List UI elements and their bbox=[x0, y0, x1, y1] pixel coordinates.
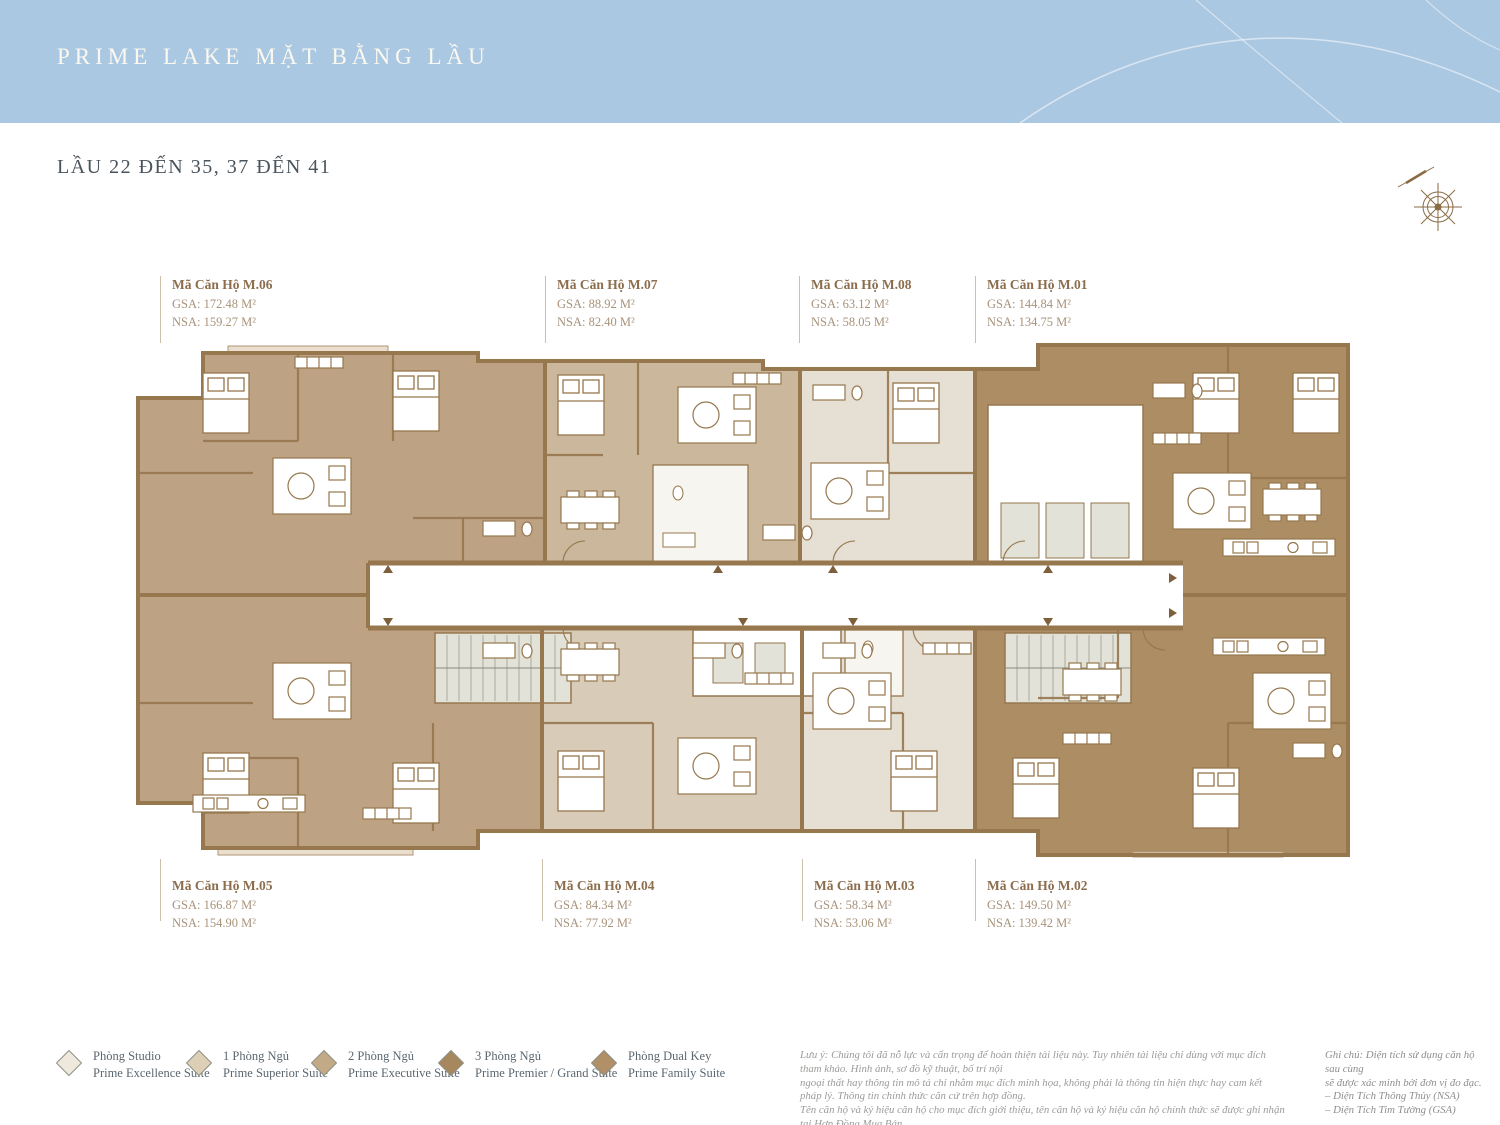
lift-bank bbox=[988, 405, 1143, 563]
legend-item-1br: 1 Phòng Ngủ Prime Superior Suite bbox=[185, 1048, 328, 1082]
legend-diamond-icon bbox=[310, 1049, 338, 1077]
legend-diamond-icon bbox=[590, 1049, 618, 1077]
unit-nsa: NSA: 58.05 M² bbox=[811, 314, 961, 330]
legend-diamond-icon bbox=[55, 1049, 83, 1077]
note-line: – Diện Tích Thông Thủy (NSA) bbox=[1325, 1090, 1490, 1104]
unit-label-m01: Mã Căn Hộ M.01 GSA: 144.84 M² NSA: 134.7… bbox=[987, 277, 1137, 330]
unit-label-m06: Mã Căn Hộ M.06 GSA: 172.48 M² NSA: 159.2… bbox=[172, 277, 322, 330]
guide-line bbox=[975, 276, 976, 343]
guide-line bbox=[975, 859, 976, 921]
unit-gsa: GSA: 84.34 M² bbox=[554, 897, 704, 913]
unit-name: Mã Căn Hộ M.03 bbox=[814, 878, 964, 894]
unit-gsa: GSA: 144.84 M² bbox=[987, 296, 1137, 312]
brochure-page: PRIME LAKE MẶT BẰNG LẦU LẦU 22 ĐẾN 35, 3… bbox=[0, 0, 1500, 1125]
legend-label-en: Prime Family Suite bbox=[628, 1065, 725, 1082]
unit-gsa: GSA: 149.50 M² bbox=[987, 897, 1137, 913]
note-line: Ghi chú: Diện tích sử dụng căn hộ sau cù… bbox=[1325, 1049, 1490, 1077]
floor-range-title: LẦU 22 ĐẾN 35, 37 ĐẾN 41 bbox=[57, 156, 331, 179]
unit-nsa: NSA: 82.40 M² bbox=[557, 314, 707, 330]
legend-item-dualkey: Phòng Dual Key Prime Family Suite bbox=[590, 1048, 725, 1082]
unit-label-m05: Mã Căn Hộ M.05 GSA: 166.87 M² NSA: 154.9… bbox=[172, 878, 322, 931]
unit-gsa: GSA: 172.48 M² bbox=[172, 296, 322, 312]
unit-nsa: NSA: 134.75 M² bbox=[987, 314, 1137, 330]
unit-nsa: NSA: 77.92 M² bbox=[554, 915, 704, 931]
guide-line bbox=[545, 276, 546, 343]
unit-nsa: NSA: 139.42 M² bbox=[987, 915, 1137, 931]
unit-gsa: GSA: 166.87 M² bbox=[172, 897, 322, 913]
unit-name: Mã Căn Hộ M.04 bbox=[554, 878, 704, 894]
guide-line bbox=[799, 276, 800, 343]
unit-name: Mã Căn Hộ M.01 bbox=[987, 277, 1137, 293]
unit-gsa: GSA: 58.34 M² bbox=[814, 897, 964, 913]
note-line: – Diện Tích Tim Tường (GSA) bbox=[1325, 1104, 1490, 1118]
unit-name: Mã Căn Hộ M.02 bbox=[987, 878, 1137, 894]
unit-name: Mã Căn Hộ M.06 bbox=[172, 277, 322, 293]
unit-label-m02: Mã Căn Hộ M.02 GSA: 149.50 M² NSA: 139.4… bbox=[987, 878, 1137, 931]
unit-nsa: NSA: 154.90 M² bbox=[172, 915, 322, 931]
guide-line bbox=[160, 859, 161, 921]
unit-gsa: GSA: 88.92 M² bbox=[557, 296, 707, 312]
guide-line bbox=[160, 276, 161, 343]
corridor bbox=[368, 563, 1183, 628]
unit-name: Mã Căn Hộ M.08 bbox=[811, 277, 961, 293]
header-band: PRIME LAKE MẶT BẰNG LẦU bbox=[0, 0, 1500, 123]
note-line: sẽ được xác minh bởi đơn vị đo đạc. bbox=[1325, 1077, 1490, 1091]
compass-icon bbox=[1392, 158, 1476, 236]
legend-label-vi: Phòng Dual Key bbox=[628, 1048, 725, 1065]
guide-line bbox=[802, 859, 803, 921]
unit-label-m07: Mã Căn Hộ M.07 GSA: 88.92 M² NSA: 82.40 … bbox=[557, 277, 707, 330]
page-title: PRIME LAKE MẶT BẰNG LẦU bbox=[57, 44, 490, 70]
disclaimer-line: ngoại thất hay thông tin mô tả chỉ nhằm … bbox=[800, 1077, 1286, 1105]
unit-nsa: NSA: 53.06 M² bbox=[814, 915, 964, 931]
unit-nsa: NSA: 159.27 M² bbox=[172, 314, 322, 330]
unit-label-m08: Mã Căn Hộ M.08 GSA: 63.12 M² NSA: 58.05 … bbox=[811, 277, 961, 330]
disclaimer-line: Lưu ý: Chúng tôi đã nỗ lực và cẩn trọng … bbox=[800, 1049, 1286, 1077]
legend-diamond-icon bbox=[437, 1049, 465, 1077]
note-text: Ghi chú: Diện tích sử dụng căn hộ sau cù… bbox=[1325, 1049, 1490, 1118]
legend-diamond-icon bbox=[185, 1049, 213, 1077]
floor-plan bbox=[133, 343, 1353, 859]
unit-gsa: GSA: 63.12 M² bbox=[811, 296, 961, 312]
unit-label-m03: Mã Căn Hộ M.03 GSA: 58.34 M² NSA: 53.06 … bbox=[814, 878, 964, 931]
unit-label-m04: Mã Căn Hộ M.04 GSA: 84.34 M² NSA: 77.92 … bbox=[554, 878, 704, 931]
disclaimer-line: Tên căn hộ và ký hiệu căn hộ cho mục đíc… bbox=[800, 1104, 1286, 1125]
disclaimer-text: Lưu ý: Chúng tôi đã nỗ lực và cẩn trọng … bbox=[800, 1049, 1286, 1125]
unit-name: Mã Căn Hộ M.05 bbox=[172, 878, 322, 894]
unit-name: Mã Căn Hộ M.07 bbox=[557, 277, 707, 293]
guide-line bbox=[542, 859, 543, 921]
